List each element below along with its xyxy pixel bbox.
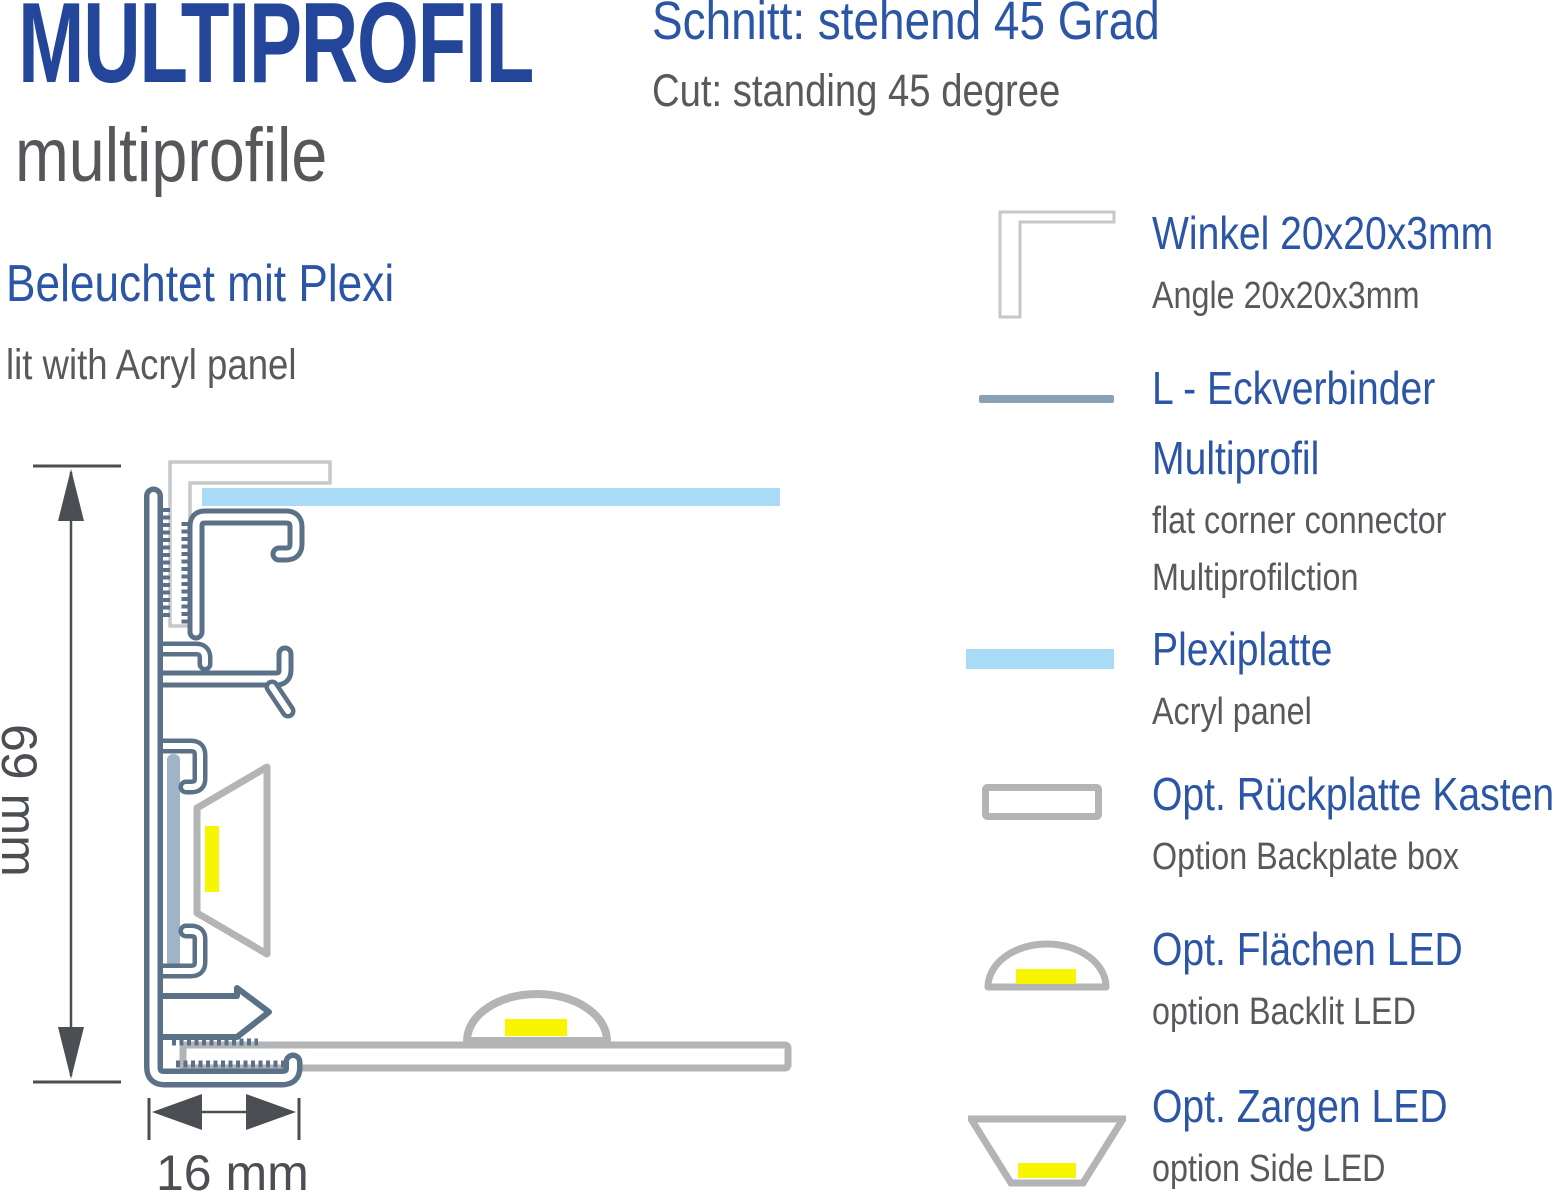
legend-title: Opt. Flächen LED — [1152, 914, 1518, 984]
legend-title: Opt. Zargen LED — [1152, 1071, 1500, 1141]
legend-subtitle: flat corner connector — [1152, 493, 1498, 550]
legend-subtitle: Angle 20x20x3mm — [1152, 268, 1553, 325]
page-title: MULTIPROFIL — [18, 0, 754, 101]
backplate-box-icon — [982, 784, 1102, 820]
led-strip-backing-shape — [167, 754, 180, 968]
width-arrow-left — [152, 1094, 202, 1130]
legend-subtitle: Option Backplate box — [1152, 829, 1560, 886]
legend-title: Winkel 20x20x3mm — [1152, 198, 1553, 268]
lit-heading-de: Beleuchtet mit Plexi — [6, 258, 463, 310]
cut-heading-de: Schnitt: stehend 45 Grad — [652, 0, 1249, 48]
legend-row-winkel: Winkel 20x20x3mm Angle 20x20x3mm — [1152, 198, 1553, 325]
plexi-panel-shape — [202, 488, 780, 506]
legend-subtitle-line2: Multiprofilction — [1152, 550, 1498, 607]
backlit-led-yellow-shape — [505, 1019, 567, 1036]
side-led-icon — [968, 1114, 1126, 1188]
legend-subtitle: option Backlit LED — [1152, 984, 1518, 1041]
legend-title-line2: Multiprofil — [1152, 423, 1498, 493]
legend-row-rueckplatte: Opt. Rückplatte Kasten Option Backplate … — [1152, 759, 1560, 886]
page-subtitle: multiprofile — [15, 118, 382, 194]
legend-title: Plexiplatte — [1152, 614, 1364, 684]
lit-heading-en: lit with Acryl panel — [6, 344, 348, 387]
height-dimension-label: 69 mm — [0, 724, 44, 877]
acryl-panel-icon — [966, 649, 1114, 669]
clamp-jaw-shape — [156, 988, 269, 1037]
legend-row-eckverbinder: L - Eckverbinder Multiprofil flat corner… — [1152, 353, 1498, 607]
height-arrow-down — [58, 1027, 84, 1079]
legend-row-flaechen-led: Opt. Flächen LED option Backlit LED — [1152, 914, 1518, 1041]
legend-subtitle: option Side LED — [1152, 1141, 1500, 1198]
legend-title: Opt. Rückplatte Kasten — [1152, 759, 1560, 829]
height-arrow-up — [58, 469, 84, 521]
angle-bracket-icon — [998, 210, 1118, 320]
width-arrow-right — [246, 1094, 296, 1130]
cut-heading-en: Cut: standing 45 degree — [652, 68, 1132, 113]
legend-title: L - Eckverbinder — [1152, 353, 1498, 423]
legend-row-plexiplatte: Plexiplatte Acryl panel — [1152, 614, 1364, 741]
page: MULTIPROFIL multiprofile Schnitt: stehen… — [0, 0, 1560, 1200]
flat-connector-line-icon — [979, 394, 1114, 404]
side-led-yellow-shape — [205, 826, 219, 892]
legend-row-zargen-led: Opt. Zargen LED option Side LED — [1152, 1071, 1500, 1198]
width-dimension-label: 16 mm — [156, 1148, 309, 1198]
backlit-led-icon — [984, 940, 1110, 992]
legend-subtitle: Acryl panel — [1152, 684, 1364, 741]
